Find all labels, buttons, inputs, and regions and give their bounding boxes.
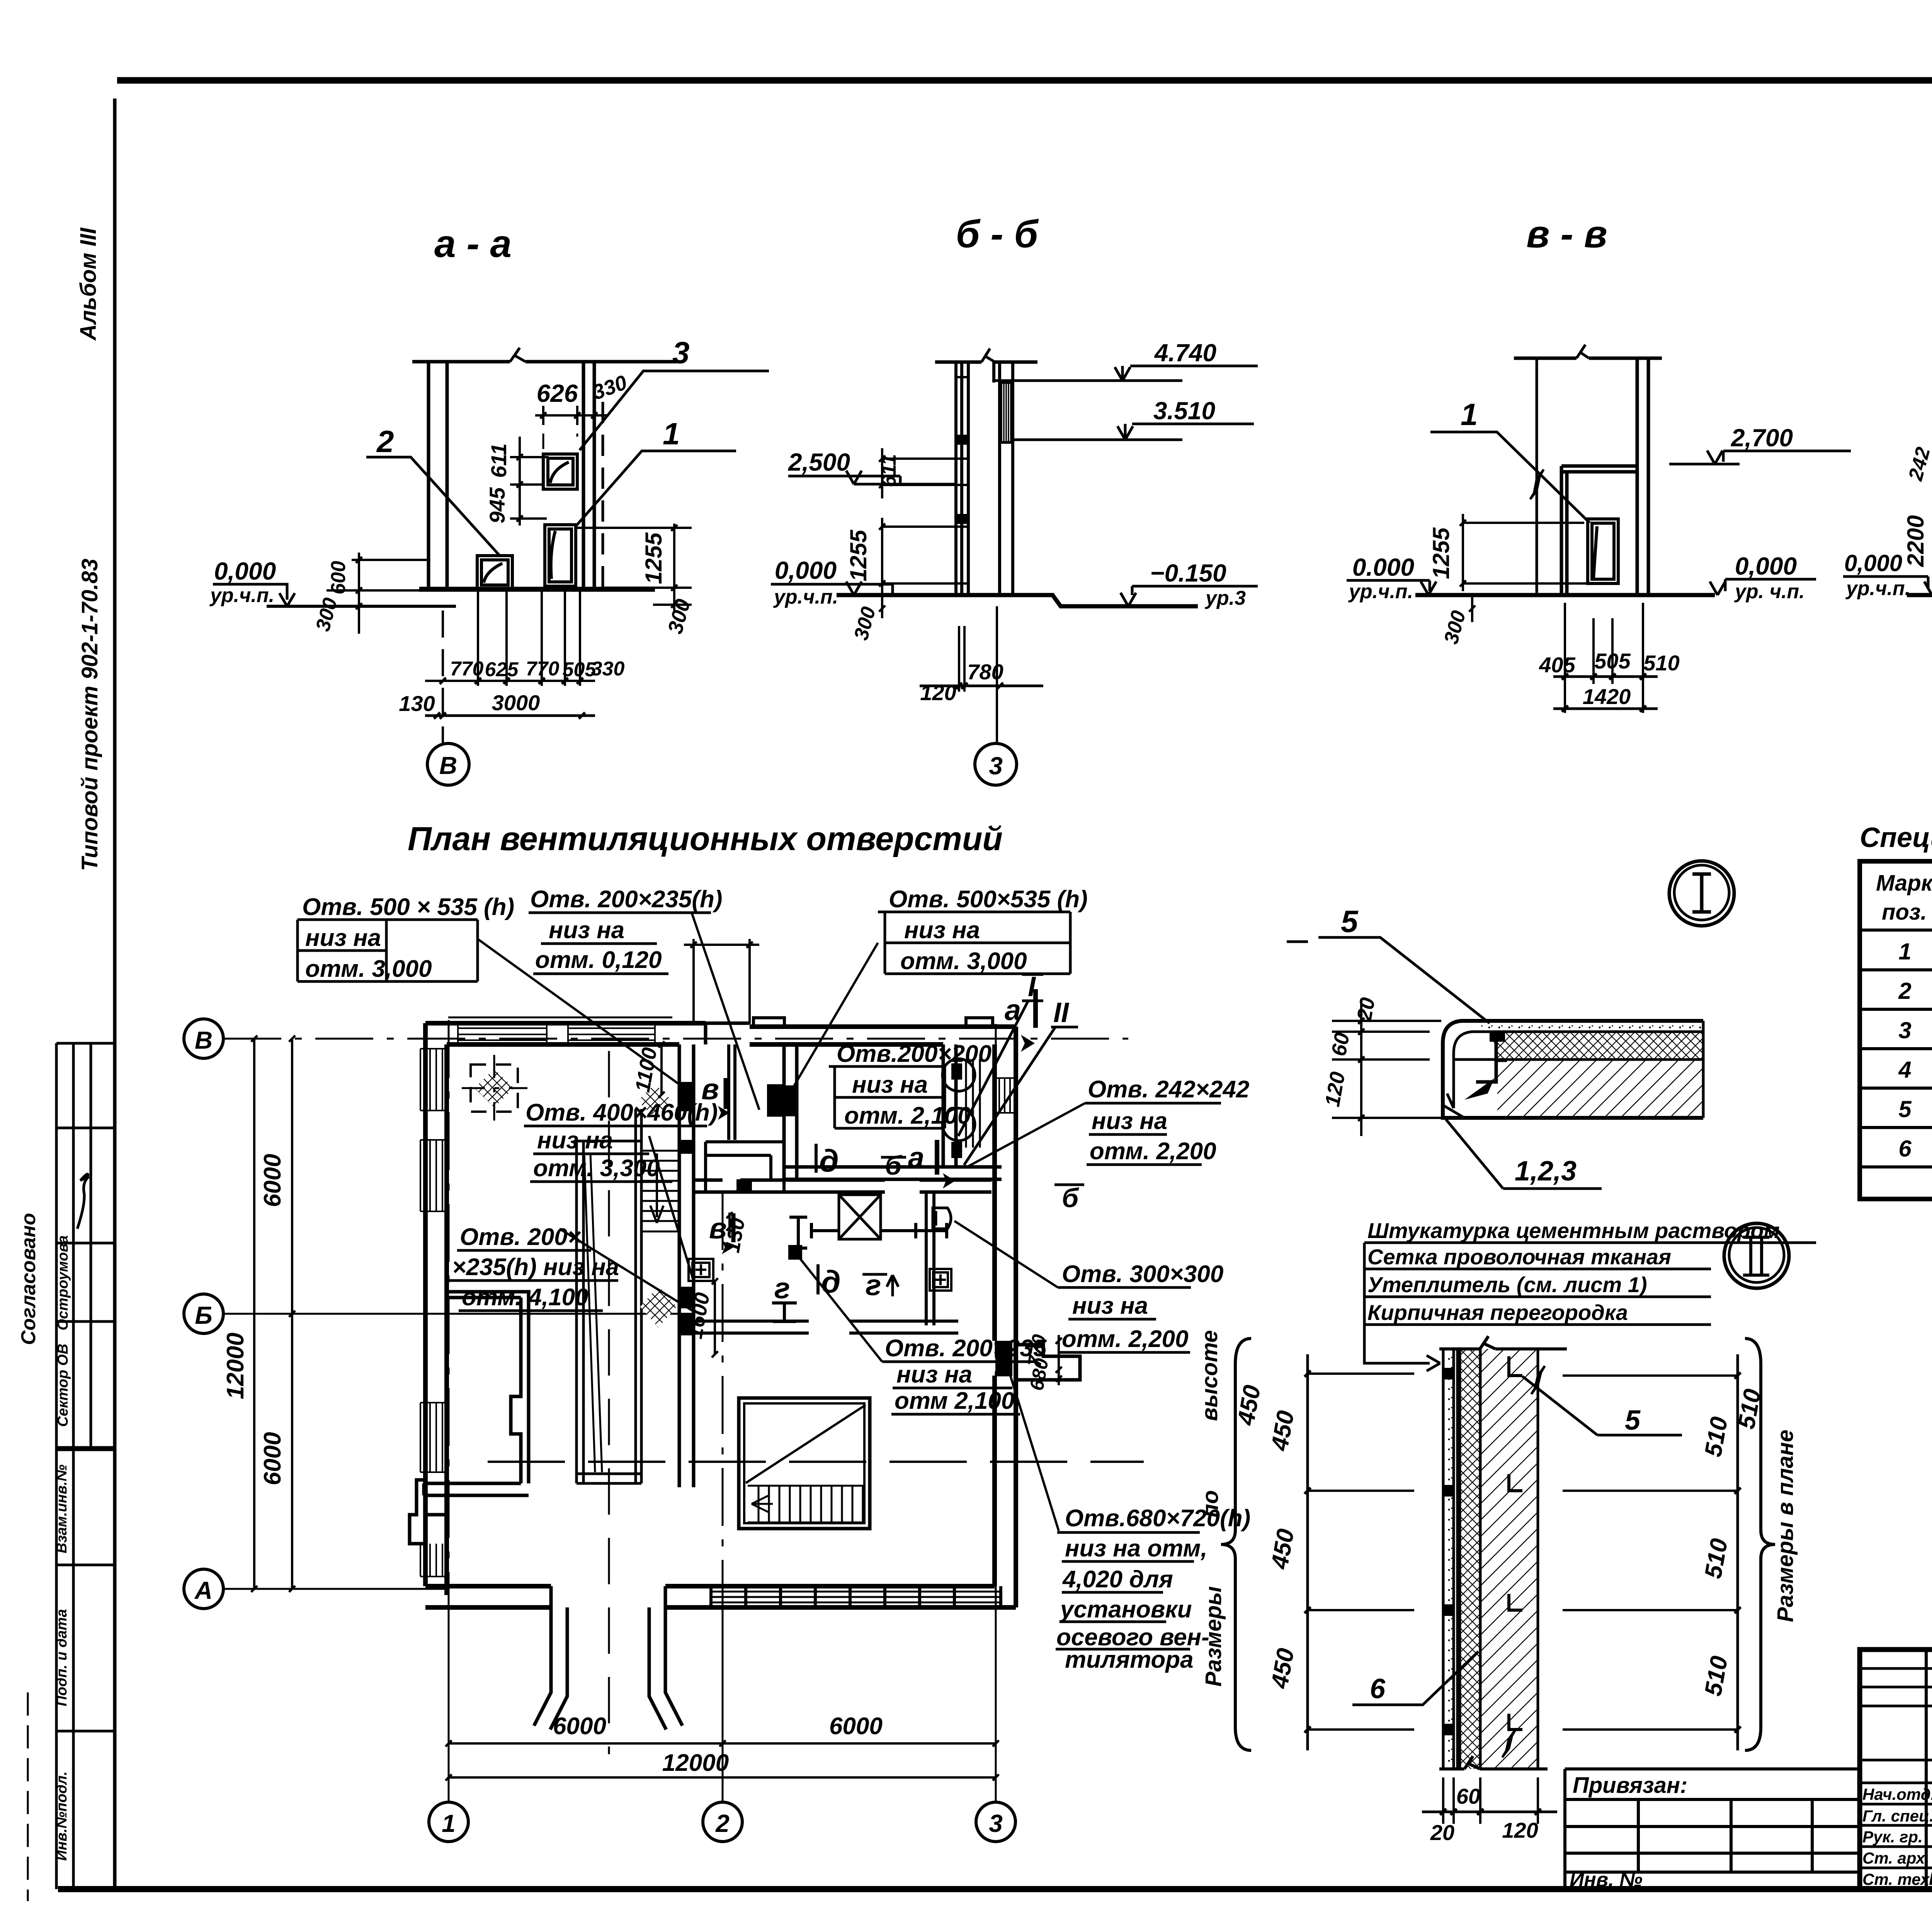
svg-text:6: 6	[1370, 1673, 1386, 1704]
svg-text:отм. 3,000: отм. 3,000	[305, 956, 432, 982]
svg-text:б: б	[1062, 1183, 1079, 1213]
svg-text:д: д	[821, 1264, 841, 1299]
svg-text:4,020 для: 4,020 для	[1062, 1566, 1173, 1593]
svg-text:ур.ч.п.: ур.ч.п.	[209, 584, 274, 607]
svg-text:ур. ч.п.: ур. ч.п.	[1734, 580, 1805, 603]
svg-text:Альбом III: Альбом III	[76, 227, 101, 341]
svg-text:Шевлякова: Шевлякова	[1929, 1869, 1932, 1889]
svg-text:высоте: высоте	[1197, 1330, 1222, 1421]
svg-text:505: 505	[1594, 649, 1631, 673]
svg-text:отм. 3,300: отм. 3,300	[533, 1155, 660, 1182]
svg-text:Утеплитель (см. лист 1): Утеплитель (см. лист 1)	[1367, 1272, 1647, 1297]
svg-text:330: 330	[591, 658, 625, 680]
svg-text:отм. 3,000: отм. 3,000	[900, 948, 1027, 975]
svg-text:1255: 1255	[641, 532, 667, 584]
svg-text:низ на: низ на	[852, 1071, 928, 1098]
svg-text:1: 1	[663, 417, 680, 451]
svg-text:низ на: низ на	[305, 925, 381, 951]
svg-text:г: г	[774, 1272, 790, 1305]
svg-text:3: 3	[989, 1810, 1003, 1837]
svg-text:ур.ч.п.: ур.ч.п.	[773, 586, 838, 608]
svg-text:510: 510	[1643, 651, 1679, 675]
svg-text:1255: 1255	[1428, 527, 1454, 579]
svg-text:130: 130	[399, 691, 435, 716]
svg-text:12000: 12000	[662, 1750, 729, 1776]
svg-text:I: I	[1028, 971, 1036, 1002]
svg-text:0,000: 0,000	[1844, 550, 1902, 576]
svg-text:д: д	[819, 1143, 839, 1179]
svg-text:низ на: низ на	[1092, 1108, 1167, 1134]
svg-text:Взам.инв.№: Взам.инв.№	[54, 1464, 70, 1553]
svg-text:×235(h) низ на: ×235(h) низ на	[452, 1254, 619, 1281]
svg-text:отм. 2,100: отм. 2,100	[844, 1102, 971, 1129]
svg-text:2,700: 2,700	[1731, 424, 1793, 452]
svg-text:Б: Б	[195, 1301, 212, 1329]
svg-text:6: 6	[1898, 1136, 1912, 1162]
svg-text:отм. 2,200: отм. 2,200	[1062, 1326, 1189, 1352]
svg-text:770: 770	[450, 658, 484, 680]
svg-text:ур.ч.п.: ур.ч.п.	[1845, 577, 1910, 600]
svg-text:12000: 12000	[222, 1333, 249, 1399]
svg-text:611: 611	[877, 454, 900, 487]
svg-text:II: II	[1053, 997, 1070, 1028]
svg-text:Отв. 200×235(h): Отв. 200×235(h)	[530, 886, 723, 913]
svg-text:3.510: 3.510	[1153, 397, 1215, 425]
svg-text:а - а: а - а	[434, 222, 512, 265]
svg-text:отм 2,100: отм 2,100	[895, 1388, 1014, 1414]
svg-text:120: 120	[920, 680, 956, 705]
svg-text:низ на: низ на	[896, 1361, 972, 1388]
svg-text:б - б: б - б	[956, 213, 1039, 256]
svg-text:Подп. и дата: Подп. и дата	[54, 1609, 70, 1706]
svg-text:120: 120	[1502, 1818, 1538, 1842]
svg-text:Кирпичная перегородка: Кирпичная перегородка	[1367, 1300, 1628, 1325]
svg-text:Отв.200×200: Отв.200×200	[837, 1041, 992, 1067]
svg-text:0,000: 0,000	[775, 556, 837, 584]
svg-text:2: 2	[1898, 978, 1911, 1004]
svg-text:А: А	[194, 1577, 213, 1604]
svg-text:1420: 1420	[1583, 684, 1631, 709]
svg-text:установки: установки	[1059, 1596, 1192, 1623]
svg-text:6000: 6000	[259, 1154, 286, 1207]
svg-text:низ на: низ на	[549, 917, 624, 944]
svg-text:Отв. 242×242: Отв. 242×242	[1088, 1076, 1249, 1103]
svg-text:низ на: низ на	[537, 1127, 613, 1154]
svg-text:3: 3	[672, 335, 690, 370]
svg-text:Рук. гр.: Рук. гр.	[1862, 1828, 1923, 1846]
svg-text:1255: 1255	[845, 529, 871, 582]
svg-text:Отв. 200×235: Отв. 200×235	[885, 1335, 1047, 1362]
svg-text:тилятора: тилятора	[1065, 1646, 1194, 1673]
svg-text:−0.150: −0.150	[1150, 559, 1226, 587]
svg-text:4.740: 4.740	[1154, 339, 1216, 367]
svg-text:низ на отм,: низ на отм,	[1065, 1535, 1207, 1562]
svg-text:1: 1	[1461, 397, 1478, 432]
svg-text:Нач.отд.: Нач.отд.	[1862, 1785, 1932, 1803]
svg-text:ур.ч.п.: ур.ч.п.	[1348, 580, 1413, 603]
svg-text:поз.: поз.	[1882, 900, 1927, 925]
svg-text:Отв. 500×535 (h): Отв. 500×535 (h)	[889, 886, 1088, 913]
svg-text:Ст. техн.: Ст. техн.	[1862, 1870, 1932, 1888]
svg-text:6000: 6000	[829, 1713, 883, 1740]
svg-text:2,500: 2,500	[788, 448, 850, 476]
svg-text:Спецификация к схеме расположе: Спецификация к схеме расположения заклад…	[1860, 822, 1932, 853]
svg-text:ур.3: ур.3	[1204, 587, 1246, 609]
svg-text:3: 3	[1898, 1017, 1911, 1043]
svg-text:5: 5	[1341, 904, 1359, 939]
svg-text:6000: 6000	[259, 1432, 286, 1485]
svg-text:0.000: 0.000	[1352, 553, 1414, 581]
svg-text:945: 945	[485, 487, 509, 523]
svg-text:2: 2	[715, 1810, 730, 1837]
svg-text:а: а	[908, 1141, 924, 1174]
svg-text:б: б	[885, 1150, 902, 1180]
svg-text:Инв.№подл.: Инв.№подл.	[54, 1771, 70, 1861]
svg-text:2200: 2200	[1903, 515, 1929, 567]
svg-text:Сектор ОВ: Сектор ОВ	[55, 1344, 71, 1427]
svg-text:Ст. арх.: Ст. арх.	[1862, 1849, 1929, 1867]
svg-text:2: 2	[376, 424, 394, 459]
svg-text:Марка,: Марка,	[1876, 871, 1932, 896]
svg-text:Остроумова: Остроумова	[55, 1235, 71, 1330]
svg-text:5: 5	[1898, 1096, 1912, 1122]
svg-text:Отв. 300×300: Отв. 300×300	[1062, 1261, 1223, 1287]
svg-text:1: 1	[1898, 939, 1911, 964]
svg-text:отм. 2,200: отм. 2,200	[1090, 1138, 1216, 1165]
svg-text:611: 611	[486, 443, 511, 478]
svg-text:Согласовано: Согласовано	[17, 1213, 40, 1345]
svg-text:Отв. 400×460(h): Отв. 400×460(h)	[526, 1099, 718, 1126]
svg-text:Привязан:: Привязан:	[1573, 1773, 1687, 1798]
svg-text:405: 405	[1539, 653, 1575, 677]
svg-text:1,2,3: 1,2,3	[1515, 1156, 1577, 1187]
svg-text:6000: 6000	[553, 1713, 606, 1740]
svg-text:Отв. 500 × 535 (h): Отв. 500 × 535 (h)	[302, 894, 514, 920]
svg-text:Сетка проволочная тканая: Сетка проволочная тканая	[1367, 1245, 1671, 1269]
svg-text:низ на: низ на	[1072, 1293, 1148, 1319]
svg-text:1: 1	[442, 1810, 456, 1837]
svg-text:5: 5	[1625, 1405, 1641, 1436]
svg-text:625: 625	[485, 658, 519, 681]
svg-text:20: 20	[1352, 996, 1379, 1023]
svg-text:Размеры: Размеры	[1201, 1586, 1226, 1687]
svg-text:3000: 3000	[492, 690, 540, 715]
svg-text:20: 20	[1430, 1820, 1454, 1845]
svg-text:0,000: 0,000	[214, 557, 276, 585]
svg-text:3: 3	[989, 752, 1003, 780]
svg-text:низ на: низ на	[904, 917, 980, 944]
svg-text:60: 60	[1327, 1031, 1354, 1058]
svg-text:в - в: в - в	[1526, 213, 1607, 256]
svg-text:0,000: 0,000	[1735, 552, 1797, 580]
svg-text:626: 626	[537, 379, 578, 407]
svg-text:Отв. 200×: Отв. 200×	[460, 1224, 582, 1250]
svg-text:отм. 4,100: отм. 4,100	[462, 1284, 588, 1311]
svg-text:770: 770	[526, 658, 560, 680]
svg-text:600: 600	[327, 561, 350, 595]
svg-text:План вентиляционных: План вентиляционных отверстий	[408, 820, 1003, 857]
svg-text:Типовой проект 902-1-70.83: Типовой проект 902-1-70.83	[77, 559, 102, 871]
svg-text:В: В	[439, 752, 457, 779]
svg-text:60: 60	[1456, 1784, 1480, 1808]
svg-text:Размеры в плане: Размеры в плане	[1773, 1430, 1798, 1622]
svg-text:В: В	[195, 1026, 213, 1054]
svg-text:Штукатурка цементным раствором: Штукатурка цементным раствором	[1367, 1218, 1780, 1243]
svg-text:Инв. №: Инв. №	[1570, 1869, 1643, 1891]
svg-text:отм. 0,120: отм. 0,120	[535, 947, 662, 973]
svg-text:4: 4	[1898, 1057, 1911, 1083]
svg-text:Гл. спец.: Гл. спец.	[1862, 1807, 1932, 1825]
svg-text:по: по	[1198, 1490, 1223, 1518]
